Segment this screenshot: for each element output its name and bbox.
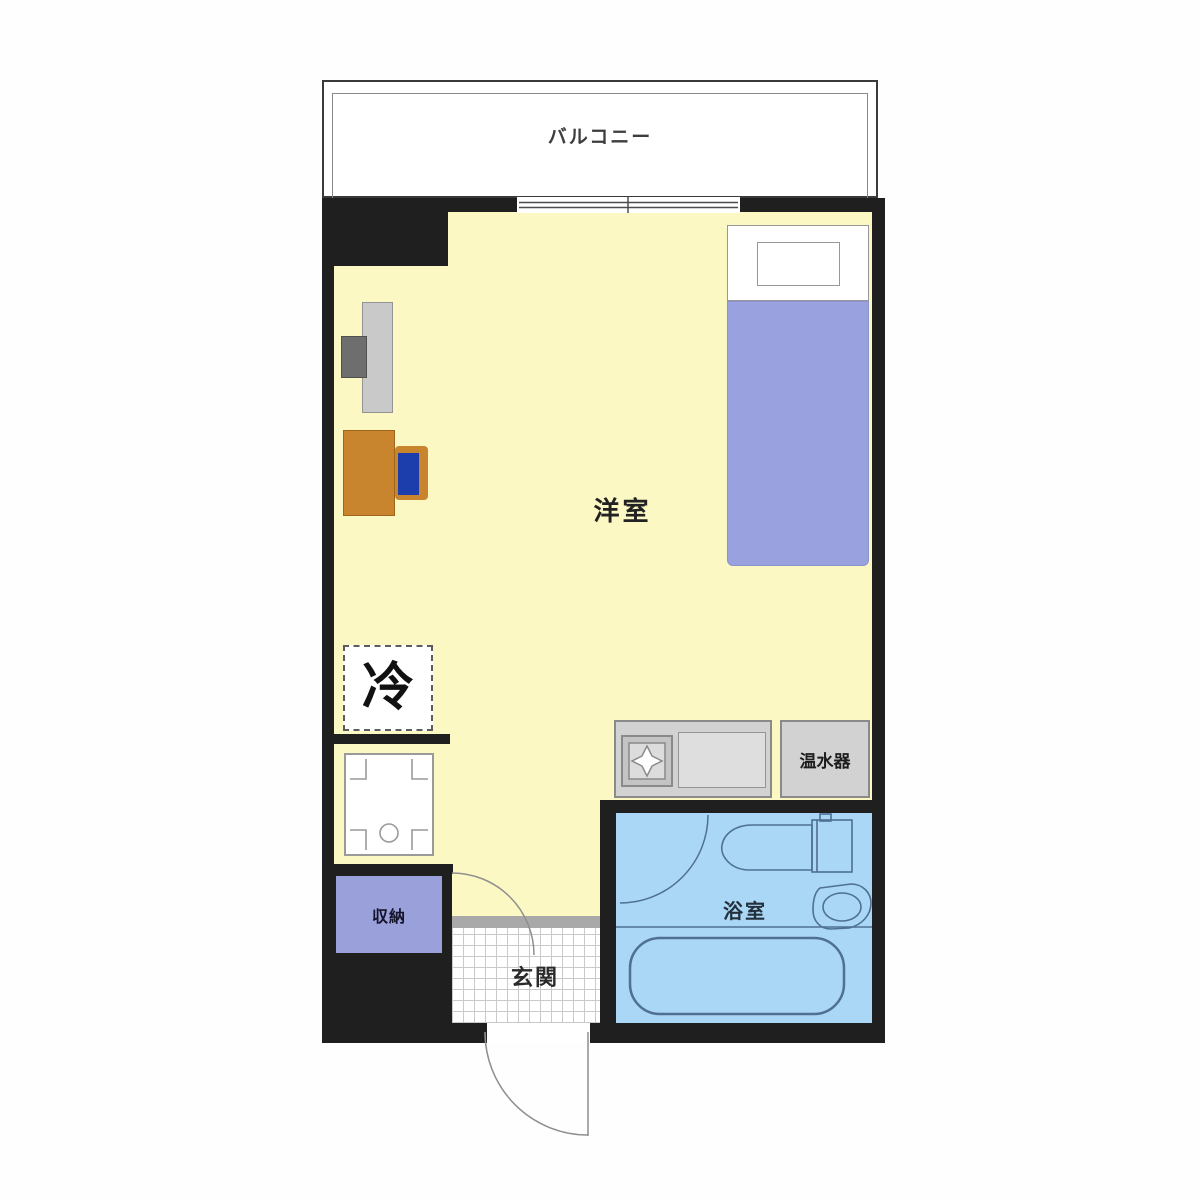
tv-icon (341, 336, 367, 378)
desk-icon (343, 430, 395, 516)
front-door-icon (485, 1032, 588, 1136)
corner-wall-bottom-left (322, 953, 453, 1043)
living-room-label: 洋室 (560, 491, 685, 528)
bed-icon (727, 301, 869, 566)
storage-label: 収納 (372, 903, 406, 927)
bathroom-label: 浴室 (690, 895, 800, 924)
storage-closet: 収納 (334, 874, 444, 955)
door-jamb-wall (444, 874, 452, 956)
refrigerator-label: 冷 (362, 662, 414, 714)
wall-stub-lower (322, 864, 453, 874)
entrance-label: 玄関 (480, 960, 590, 992)
kitchen-sink-icon (678, 732, 766, 788)
corner-pillar-wall (322, 198, 448, 266)
balcony-label: バルコニー (322, 122, 878, 149)
entrance-step (452, 916, 600, 928)
wall-stub-upper (322, 734, 450, 744)
water-heater-icon: 温水器 (780, 720, 870, 798)
washing-machine-pan-icon (344, 753, 434, 856)
floor-plan-canvas: バルコニー 冷 収納 温水器 洋室 浴室 玄関 (0, 0, 1200, 1200)
water-heater-label: 温水器 (800, 747, 851, 772)
sliding-window-icon (517, 197, 740, 213)
chair-seat (398, 453, 419, 495)
refrigerator-space-icon: 冷 (343, 645, 433, 731)
pillow-icon (757, 242, 840, 286)
front-door-opening (487, 1023, 590, 1043)
